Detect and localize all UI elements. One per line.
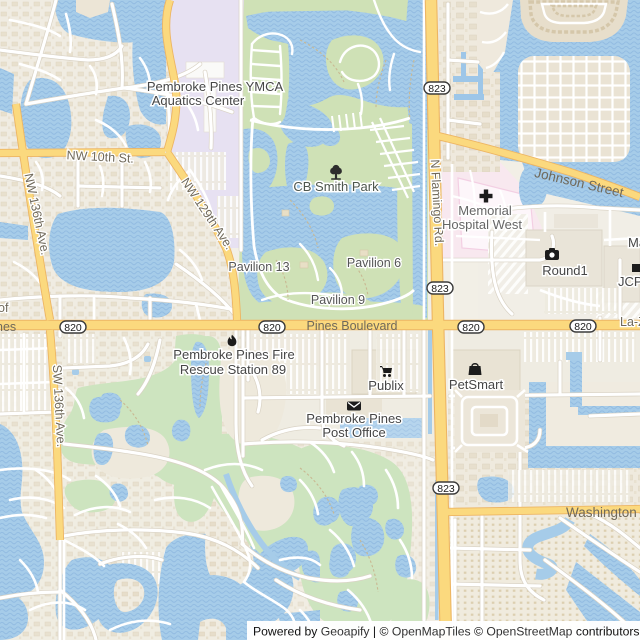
svg-text:Rescue Station 89: Rescue Station 89	[180, 362, 286, 377]
svg-text:PetSmart: PetSmart	[449, 377, 504, 392]
svg-text:Pavilion 9: Pavilion 9	[311, 293, 365, 307]
svg-text:Pines Boulevard: Pines Boulevard	[306, 319, 397, 333]
svg-text:La-Z: La-Z	[620, 315, 640, 329]
svg-text:820: 820	[263, 322, 281, 334]
svg-text:820: 820	[64, 322, 82, 334]
svg-text:Pembroke Pines YMCA: Pembroke Pines YMCA	[147, 79, 284, 94]
svg-text:of: of	[0, 301, 9, 315]
svg-text:Ma: Ma	[628, 235, 640, 250]
svg-text:823: 823	[431, 283, 449, 295]
svg-text:Memorial: Memorial	[458, 203, 512, 218]
svg-text:Round1: Round1	[542, 263, 588, 278]
svg-text:Post Office: Post Office	[322, 425, 385, 440]
svg-text:Powered by Geoapify | © OpenMa: Powered by Geoapify | © OpenMapTiles © O…	[253, 625, 640, 639]
svg-text:CB Smith Park: CB Smith Park	[293, 179, 379, 194]
svg-text:Pavilion 13: Pavilion 13	[228, 260, 289, 274]
svg-text:820: 820	[462, 322, 480, 334]
svg-text:Hospital West: Hospital West	[442, 217, 522, 232]
svg-text:Pembroke Pines: Pembroke Pines	[306, 411, 402, 426]
svg-text:Aquatics Center: Aquatics Center	[152, 93, 245, 108]
svg-text:Publix: Publix	[368, 378, 404, 393]
svg-text:nes: nes	[0, 320, 16, 334]
svg-text:823: 823	[437, 483, 455, 495]
svg-text:Pembroke Pines Fire: Pembroke Pines Fire	[173, 347, 294, 362]
svg-text:823: 823	[428, 83, 446, 95]
svg-text:Pavilion 6: Pavilion 6	[347, 256, 401, 270]
svg-text:820: 820	[574, 321, 592, 333]
svg-text:Washington Street: Washington Street	[566, 505, 640, 520]
svg-text:JCPe: JCPe	[618, 274, 640, 289]
